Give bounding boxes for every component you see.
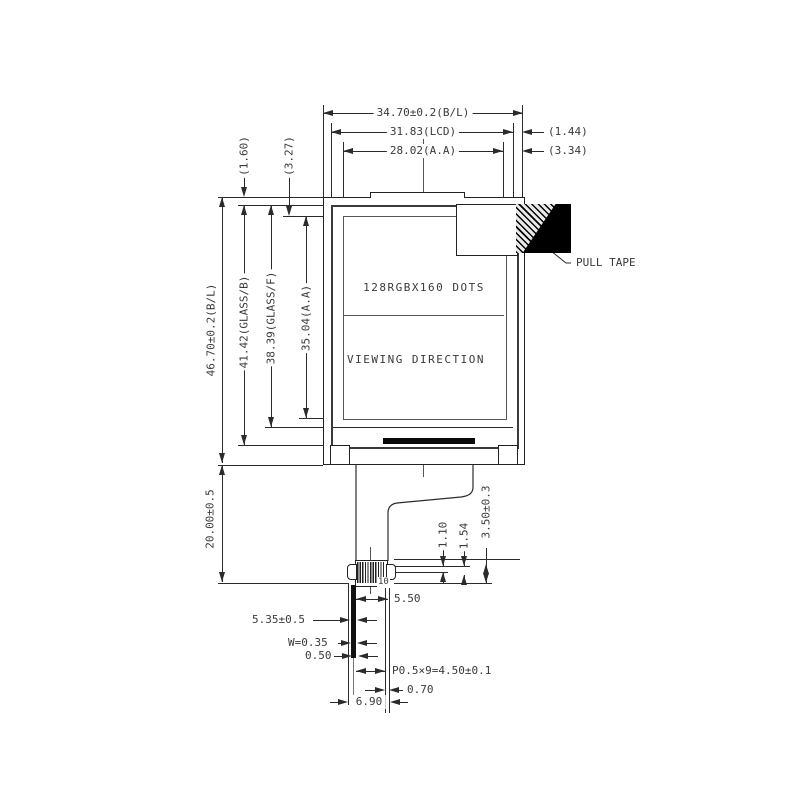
dim-stiffener-label: 5.35±0.5: [250, 613, 307, 627]
arrow-icon: [378, 596, 388, 602]
arrow-icon: [357, 640, 367, 646]
arrow-icon: [513, 110, 523, 116]
fpc-left-edge: [356, 449, 363, 561]
dim-aa-width-label: 28.02(A.A): [387, 144, 459, 158]
tape-attach-area: [456, 204, 518, 256]
arrow-icon: [219, 197, 225, 207]
arrow-icon: [241, 187, 247, 197]
arrow-icon: [522, 129, 532, 135]
arrow-icon: [241, 205, 247, 215]
cog-ic-bar: [383, 438, 475, 444]
arrow-icon: [503, 129, 513, 135]
dim-glass-back-height-label: 41.42(GLASS/B): [238, 274, 251, 371]
arrow-icon: [356, 668, 366, 674]
arrow-icon: [286, 206, 292, 216]
arrow-icon: [268, 205, 274, 215]
viewing-direction-label: VIEWING DIRECTION: [344, 353, 488, 367]
dim-pin-gap-label: 0.50: [303, 649, 334, 663]
arrow-icon: [356, 596, 366, 602]
arrow-icon: [390, 699, 400, 705]
arrow-icon: [375, 668, 385, 674]
arrow-icon: [461, 575, 467, 585]
dim-conn-mid-label: 1.54: [458, 521, 471, 552]
dim-conn-top-label: 1.10: [437, 520, 450, 551]
bottom-notch-right: [498, 445, 518, 465]
glass-front-bottom-edge: [333, 427, 513, 428]
arrow-icon: [338, 699, 348, 705]
arrow-icon: [358, 653, 368, 659]
arrow-icon: [522, 148, 532, 154]
screen-dots-label: 128RGBX160 DOTS: [360, 281, 488, 295]
arrow-icon: [303, 216, 309, 226]
pin-number-label: 10: [377, 577, 390, 588]
dim-tail-width-label: 5.50: [392, 592, 423, 606]
dim-gap-glass-top-label: (1.60): [238, 134, 251, 178]
dim-glass-front-height-label: 38.39(GLASS/F): [265, 270, 278, 367]
dim-gap-aa-right-label: (3.34): [546, 144, 590, 158]
active-area-midline: [344, 315, 504, 316]
arrow-icon: [323, 110, 333, 116]
arrow-icon: [268, 417, 274, 427]
arrow-icon: [483, 573, 489, 583]
dim-conn-total-label: 3.50±0.3: [480, 484, 493, 541]
dim-gap-lcd-right-label: (1.44): [546, 125, 590, 139]
arrow-icon: [303, 408, 309, 418]
dim-pin-width-label: W=0.35: [286, 636, 330, 650]
dim-bl-width-label: 34.70±0.2(B/L): [374, 106, 473, 120]
arrow-icon: [241, 435, 247, 445]
bottom-notch-left: [330, 445, 350, 465]
arrow-icon: [357, 617, 367, 623]
dim-gap-aa-top-label: (3.27): [283, 134, 296, 178]
arrow-icon: [375, 687, 385, 693]
arrow-icon: [219, 453, 225, 463]
lcd-dimension-drawing: 34.70±0.2(B/L) 31.83(LCD) (1.44) 28.02(A…: [0, 0, 800, 800]
dim-aa-height-label: 35.04(A.A): [300, 283, 313, 353]
dim-tail-total-label: 6.90: [353, 695, 386, 709]
pull-tape: [516, 204, 571, 253]
arrow-icon: [342, 653, 352, 659]
arrow-icon: [440, 572, 446, 582]
arrow-icon: [440, 556, 446, 566]
dim-fpc-length-label: 20.00±0.5: [204, 487, 217, 551]
dim-bl-height-label: 46.70±0.2(B/L): [205, 282, 218, 379]
dim-tail-gap-label: 0.70: [405, 683, 436, 697]
pull-tape-hatch: [516, 204, 571, 253]
arrow-icon: [219, 572, 225, 582]
arrow-icon: [340, 617, 350, 623]
connector-ear-left: [347, 564, 357, 580]
arrow-icon: [341, 640, 351, 646]
dim-lcd-width-label: 31.83(LCD): [387, 125, 459, 139]
arrow-icon: [461, 556, 467, 566]
arrow-icon: [389, 687, 399, 693]
pull-tape-label: PULL TAPE: [574, 256, 638, 270]
top-bump: [370, 192, 465, 198]
dim-pin-pitch-label: P0.5×9=4.50±0.1: [390, 664, 493, 678]
arrow-icon: [219, 465, 225, 475]
arrow-icon: [343, 148, 353, 154]
arrow-icon: [331, 129, 341, 135]
arrow-icon: [493, 148, 503, 154]
